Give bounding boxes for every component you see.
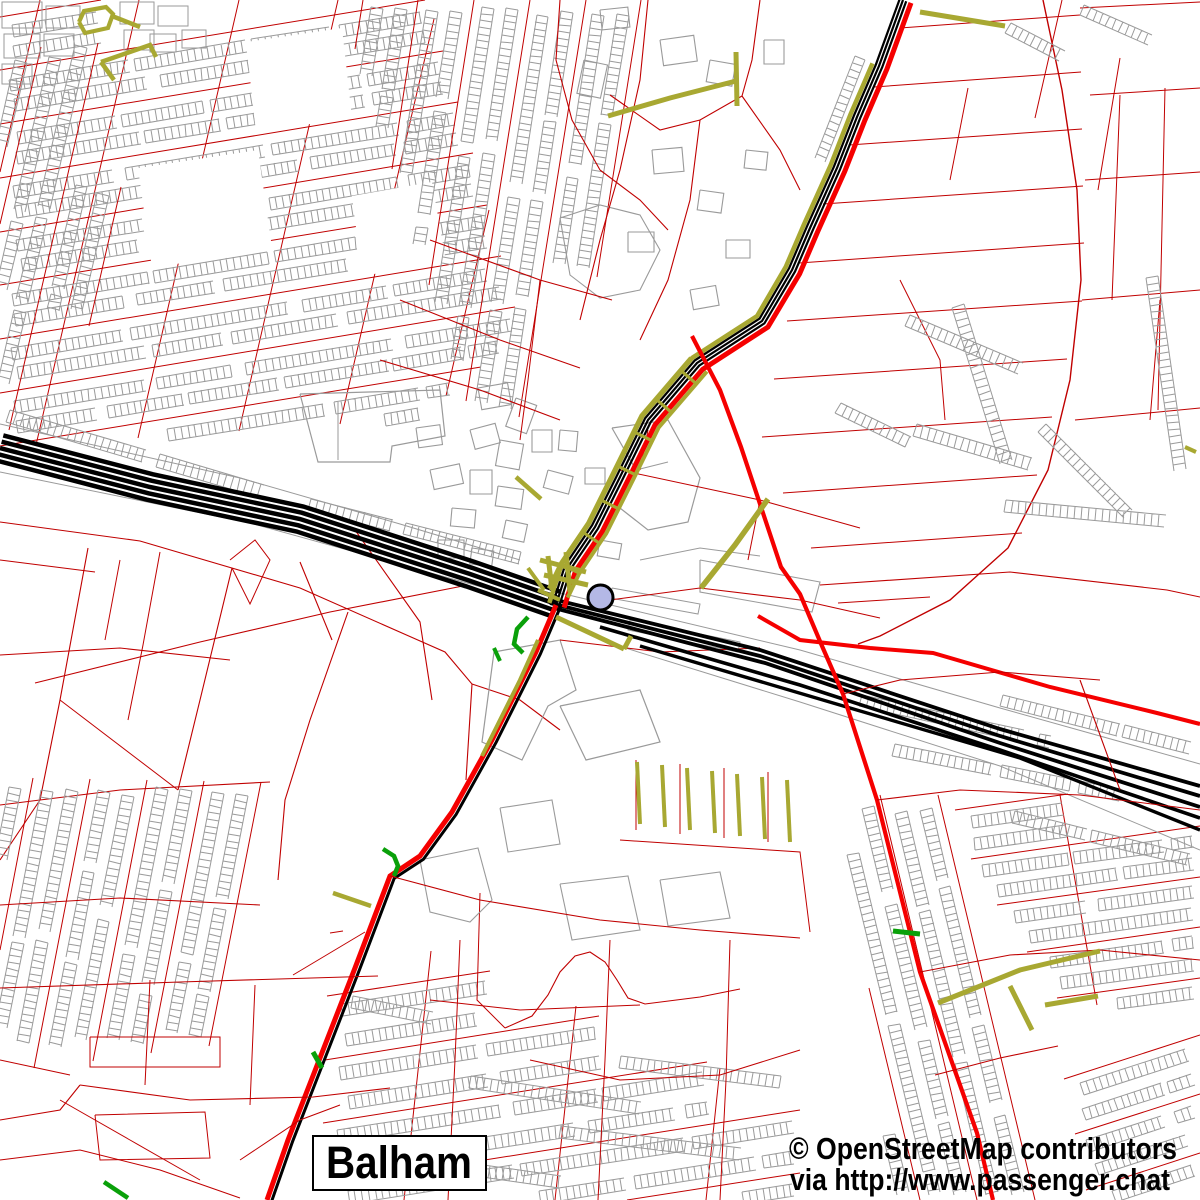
svg-text:Balham: Balham [326,1137,472,1188]
svg-text:© OpenStreetMap contributors: © OpenStreetMap contributors [789,1131,1177,1166]
svg-text:via http://www.passenger.chat: via http://www.passenger.chat [790,1162,1170,1197]
